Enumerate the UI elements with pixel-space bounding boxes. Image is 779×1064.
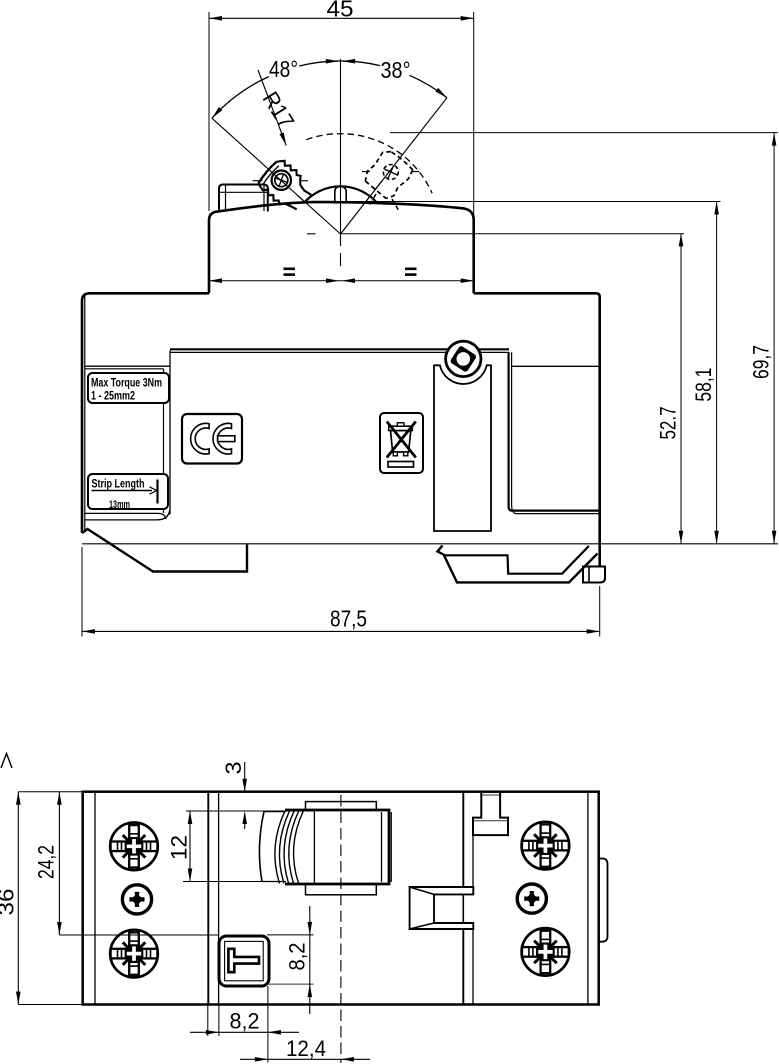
svg-text:45: 45 bbox=[327, 0, 354, 22]
svg-text:Strip Length: Strip Length bbox=[92, 477, 145, 491]
svg-text:24,2: 24,2 bbox=[34, 845, 59, 879]
svg-text:36: 36 bbox=[0, 889, 19, 916]
svg-text:1 - 25mm2: 1 - 25mm2 bbox=[91, 389, 135, 403]
svg-text:12,4: 12,4 bbox=[286, 1036, 326, 1061]
svg-text:Max Torque 3Nm: Max Torque 3Nm bbox=[91, 376, 162, 390]
svg-text:13mm: 13mm bbox=[109, 499, 130, 511]
svg-text:58,1: 58,1 bbox=[691, 368, 716, 402]
svg-text:52.7: 52.7 bbox=[656, 407, 681, 440]
svg-text:12: 12 bbox=[167, 835, 192, 860]
svg-text:48°: 48° bbox=[269, 56, 298, 82]
svg-text:87,5: 87,5 bbox=[330, 606, 367, 632]
svg-text:8,2: 8,2 bbox=[230, 1009, 260, 1034]
svg-text:8,2: 8,2 bbox=[285, 943, 310, 971]
svg-text:3: 3 bbox=[221, 762, 246, 775]
svg-text:69,7: 69,7 bbox=[749, 345, 774, 379]
svg-text:38°: 38° bbox=[381, 57, 411, 83]
